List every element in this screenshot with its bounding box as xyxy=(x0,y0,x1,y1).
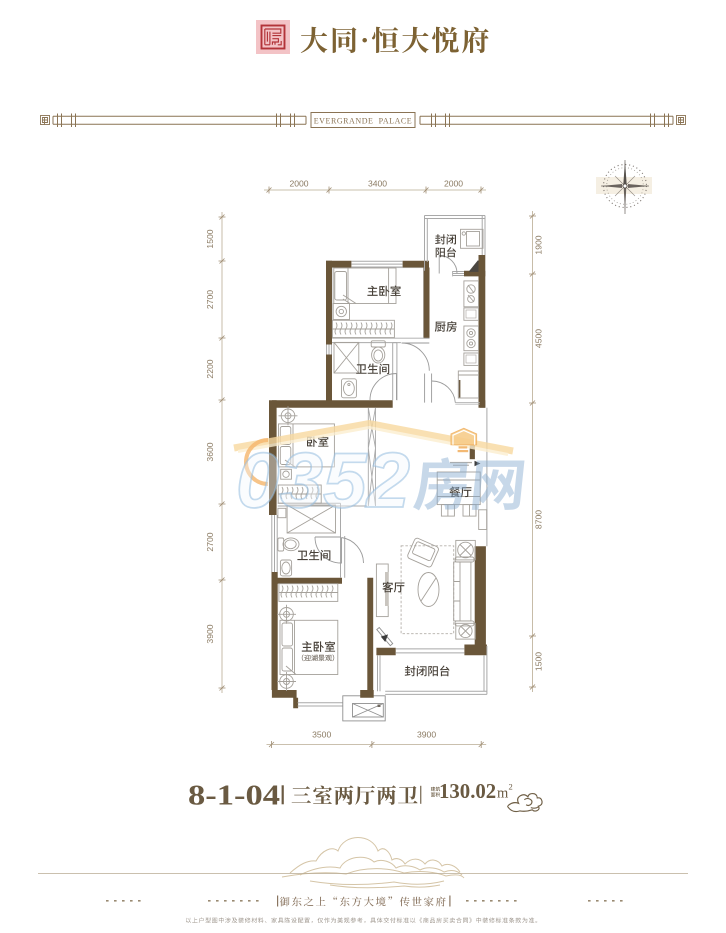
svg-text:1500: 1500 xyxy=(205,229,215,248)
svg-text:2700: 2700 xyxy=(205,532,215,551)
svg-text:2000: 2000 xyxy=(444,179,463,189)
svg-text:0352: 0352 xyxy=(236,436,410,524)
svg-text:EVERGRANDE PALACE: EVERGRANDE PALACE xyxy=(314,117,413,126)
svg-text:2200: 2200 xyxy=(205,359,215,378)
svg-text:130.02: 130.02 xyxy=(439,780,496,803)
svg-text:2: 2 xyxy=(509,782,513,792)
svg-text:2700: 2700 xyxy=(205,290,215,309)
svg-text:3400: 3400 xyxy=(368,179,387,189)
svg-text:1900: 1900 xyxy=(534,235,544,254)
svg-text:8700: 8700 xyxy=(534,510,544,529)
svg-text:3500: 3500 xyxy=(312,730,331,740)
svg-text:3900: 3900 xyxy=(205,624,215,643)
svg-text:3600: 3600 xyxy=(205,442,215,461)
svg-text:8-1-04: 8-1-04 xyxy=(188,781,280,812)
svg-text:3900: 3900 xyxy=(417,730,436,740)
svg-text:1500: 1500 xyxy=(534,652,544,671)
svg-text:2000: 2000 xyxy=(289,179,308,189)
svg-text:4500: 4500 xyxy=(534,329,544,348)
svg-text:m: m xyxy=(497,785,509,801)
